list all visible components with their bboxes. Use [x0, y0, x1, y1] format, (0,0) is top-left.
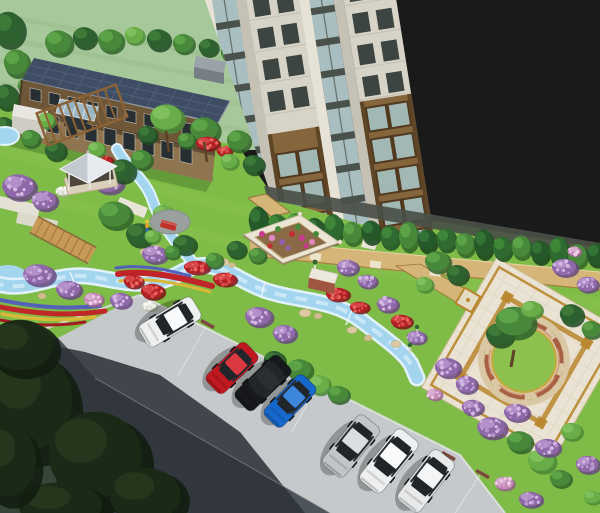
planter-bloom: [299, 235, 305, 241]
red-bloom: [335, 288, 337, 290]
tower-brick-window: [399, 166, 420, 191]
purple-bloom: [279, 335, 282, 338]
planter-bloom: [279, 239, 285, 245]
purple-bloom: [260, 311, 262, 313]
upper-pond: [0, 127, 19, 145]
treeDark-highlight: [74, 29, 86, 39]
tower-brick-window: [277, 153, 298, 178]
purple-bloom: [548, 441, 551, 444]
purple-bloom: [460, 383, 464, 387]
tower-window: [386, 71, 405, 93]
purple-bloom: [590, 277, 594, 281]
purple-bloom: [274, 331, 277, 334]
hedge-highlight: [438, 230, 448, 241]
pink-bloom: [89, 301, 93, 305]
purple-bloom: [529, 501, 532, 504]
purple-bloom: [382, 307, 385, 310]
purple-bloom: [154, 245, 158, 249]
tower-brick-window: [367, 106, 388, 131]
tower-window: [291, 86, 310, 108]
purple-bloom: [581, 466, 583, 468]
tower-window: [376, 8, 395, 30]
purple-bloom: [409, 338, 413, 342]
purple-bloom: [70, 293, 73, 296]
purple-bloom: [392, 301, 394, 303]
red-bloom: [151, 287, 153, 289]
purple-bloom: [358, 276, 362, 280]
treeLight-highlight: [417, 278, 426, 285]
bridge-lamp: [313, 260, 318, 265]
purple-bloom: [578, 283, 581, 286]
hedgeDark-highlight: [588, 245, 598, 256]
red-bloom: [225, 283, 227, 285]
treeMid-highlight: [174, 35, 185, 44]
treeDark-highlight: [174, 236, 186, 245]
purple-bloom: [469, 401, 472, 404]
purple-bloom: [555, 444, 558, 447]
purple-bloom: [522, 409, 526, 413]
purple-bloom: [464, 407, 466, 409]
purple-bloom: [119, 303, 122, 306]
red-bloom: [339, 291, 341, 293]
purple-bloom: [526, 492, 528, 494]
purple-bloom: [474, 404, 478, 408]
purple-bloom: [57, 285, 61, 289]
white-bloom: [144, 303, 147, 306]
pillar-cap: [298, 212, 302, 216]
purple-bloom: [33, 266, 35, 268]
purple-bloom: [22, 188, 25, 191]
planter-bloom: [267, 243, 272, 248]
treeDark-highlight: [561, 306, 573, 316]
treeMid-highlight: [498, 309, 519, 324]
purple-bloom: [20, 177, 23, 180]
purple-bloom: [369, 279, 371, 281]
purple-bloom: [23, 274, 27, 278]
purple-bloom: [510, 411, 512, 413]
red-bloom: [220, 280, 222, 282]
treeMid-highlight: [207, 254, 216, 261]
purple-bloom: [590, 462, 594, 466]
pink-bloom: [569, 251, 571, 253]
planter-bloom: [269, 235, 275, 241]
purple-bloom: [532, 495, 534, 497]
purple-bloom: [468, 404, 470, 406]
pillar-cap: [338, 240, 342, 244]
red-bloom: [203, 262, 206, 265]
pink-bloom: [571, 248, 574, 251]
treeMid-highlight: [250, 249, 259, 256]
purple-bloom: [116, 293, 118, 295]
purple-bloom: [26, 278, 28, 280]
purple-bloom: [115, 303, 119, 307]
boulder: [314, 313, 322, 319]
planter-bloom: [289, 231, 295, 237]
purple-bloom: [46, 197, 50, 201]
red-bloom: [145, 286, 147, 288]
purple-bloom: [444, 358, 446, 360]
hedgeDark-highlight: [475, 231, 485, 245]
red-bloom: [335, 296, 338, 299]
pink-bloom: [573, 252, 577, 256]
treeLight-highlight: [585, 492, 594, 498]
red-bloom: [221, 283, 225, 287]
pink-bloom: [85, 301, 87, 303]
pink-bloom: [430, 388, 434, 392]
treeMid-highlight: [551, 471, 562, 479]
hedgeDark-highlight: [419, 231, 429, 242]
purple-bloom: [524, 502, 528, 506]
purple-bloom: [476, 407, 480, 411]
purple-bloom: [30, 271, 32, 273]
treeDark-highlight: [128, 225, 143, 236]
red-bloom: [397, 321, 399, 323]
pink-bloom: [431, 396, 434, 399]
red-bloom: [139, 278, 143, 282]
red-bloom: [330, 296, 334, 300]
hedge-highlight: [381, 227, 391, 238]
purple-bloom: [44, 191, 48, 195]
purple-bloom: [370, 282, 372, 284]
treeLight-highlight: [562, 424, 573, 432]
purple-bloom: [343, 262, 346, 265]
bollard-lamp: [415, 325, 419, 329]
hedgeDark-highlight: [532, 242, 542, 253]
red-bloom: [229, 274, 232, 277]
treeMid-highlight: [47, 32, 62, 44]
pink-bloom: [92, 295, 95, 298]
red-bloom: [353, 310, 356, 313]
tower-window: [362, 75, 381, 97]
treeMid-highlight: [344, 223, 354, 234]
red-bloom: [105, 156, 107, 158]
purple-bloom: [488, 434, 491, 437]
person-legs: [146, 228, 148, 232]
boulder: [391, 341, 401, 348]
red-bloom: [361, 307, 363, 309]
purple-bloom: [122, 296, 124, 298]
purple-bloom: [251, 315, 255, 319]
red-bloom: [199, 140, 203, 144]
red-bloom: [125, 277, 128, 280]
purple-bloom: [535, 496, 538, 499]
purple-bloom: [414, 338, 418, 342]
treeDark-highlight: [148, 31, 160, 41]
purple-bloom: [150, 248, 153, 251]
purple-bloom: [471, 389, 473, 391]
purple-bloom: [345, 259, 349, 263]
planter-bloom: [285, 245, 290, 250]
red-bloom: [353, 306, 356, 309]
treeMid-highlight: [179, 134, 188, 141]
treeLight-highlight: [146, 231, 154, 237]
treeMid-highlight: [457, 235, 467, 246]
red-bloom: [144, 288, 148, 292]
purple-bloom: [42, 202, 45, 205]
pink-bloom: [500, 479, 503, 482]
purple-bloom: [157, 250, 161, 254]
purple-bloom: [590, 467, 594, 471]
treeMid-highlight: [132, 151, 143, 160]
purple-bloom: [367, 284, 370, 287]
pink-bloom: [508, 477, 512, 481]
purple-bloom: [485, 428, 489, 432]
planter-bloom: [303, 243, 308, 248]
red-bloom: [227, 280, 231, 284]
purple-bloom: [464, 375, 468, 379]
purple-bloom: [498, 421, 500, 423]
treeDark-highlight: [200, 40, 210, 48]
treeMid-highlight: [192, 119, 208, 131]
purple-bloom: [72, 290, 74, 292]
purple-bloom: [465, 387, 468, 390]
purple-bloom: [342, 265, 345, 268]
purple-bloom: [125, 296, 128, 299]
tower-brick-window: [372, 138, 393, 163]
paver: [370, 260, 382, 268]
purple-bloom: [459, 387, 462, 390]
purple-bloom: [77, 285, 79, 287]
red-bloom: [206, 139, 208, 141]
purple-bloom: [480, 421, 482, 423]
purple-bloom: [556, 268, 559, 271]
purple-bloom: [553, 263, 556, 266]
purple-bloom: [591, 456, 595, 460]
purple-bloom: [416, 331, 418, 333]
purple-bloom: [47, 276, 50, 279]
purple-bloom: [59, 288, 62, 291]
red-bloom: [401, 317, 404, 320]
treeLight-highlight: [152, 106, 170, 119]
pink-bloom: [436, 391, 438, 393]
treeDark-highlight: [228, 242, 238, 250]
red-bloom: [194, 261, 197, 264]
purple-bloom: [577, 463, 580, 466]
purple-bloom: [16, 180, 18, 182]
purple-bloom: [38, 194, 42, 198]
boulder: [299, 309, 311, 317]
purple-bloom: [582, 280, 585, 283]
tower-brick-window: [299, 149, 320, 174]
purple-bloom: [491, 433, 495, 437]
purple-bloom: [412, 333, 414, 335]
treeMid-highlight: [100, 31, 114, 42]
purple-bloom: [40, 270, 42, 272]
purple-bloom: [566, 264, 570, 268]
boulder: [38, 293, 46, 299]
purple-bloom: [517, 412, 521, 416]
boulder: [229, 263, 236, 268]
purple-bloom: [586, 285, 588, 287]
purple-bloom: [29, 182, 32, 185]
purple-bloom: [32, 278, 36, 282]
purple-bloom: [453, 364, 456, 367]
treeMid-highlight: [228, 132, 240, 142]
purple-bloom: [114, 299, 118, 303]
tower-window: [357, 43, 376, 65]
planter-shrub: [313, 231, 319, 237]
purple-bloom: [13, 187, 17, 191]
planter-bloom: [259, 231, 265, 237]
purple-bloom: [47, 206, 49, 208]
red-bloom: [400, 322, 404, 326]
purple-bloom: [383, 296, 387, 300]
tower-window: [257, 26, 276, 48]
pink-bloom: [503, 484, 505, 486]
purple-bloom: [260, 315, 263, 318]
planter-shrub: [295, 224, 301, 230]
purple-bloom: [253, 321, 257, 325]
white-bloom: [148, 301, 151, 304]
purple-bloom: [540, 447, 542, 449]
purple-bloom: [471, 411, 475, 415]
treeDark-highlight: [244, 156, 255, 165]
red-bloom: [222, 274, 225, 277]
purple-bloom: [288, 336, 290, 338]
treeMid-highlight: [22, 131, 32, 139]
treeLight-highlight: [522, 302, 533, 310]
hedge-highlight: [325, 216, 335, 230]
purple-bloom: [590, 282, 594, 286]
purple-bloom: [420, 336, 423, 339]
purple-bloom: [407, 336, 409, 338]
purple-bloom: [564, 259, 568, 263]
treeLight-highlight: [126, 28, 136, 36]
pink-bloom: [495, 482, 498, 485]
purple-bloom: [495, 419, 498, 422]
purple-bloom: [113, 295, 117, 299]
render-stage: [0, 0, 600, 513]
purple-bloom: [370, 276, 374, 280]
purple-bloom: [449, 367, 452, 370]
purple-bloom: [364, 276, 368, 280]
red-bloom: [221, 152, 223, 154]
hedge-highlight: [494, 238, 504, 249]
purple-bloom: [544, 443, 547, 446]
purple-bloom: [469, 409, 471, 411]
purple-bloom: [122, 300, 125, 303]
red-bloom: [209, 144, 212, 147]
purple-bloom: [148, 252, 151, 255]
red-bloom: [131, 277, 134, 280]
purple-bloom: [509, 416, 511, 418]
purple-bloom: [582, 286, 584, 288]
purple-bloom: [32, 195, 35, 198]
pink-bloom: [568, 248, 570, 250]
purple-bloom: [352, 266, 354, 268]
tower-window: [252, 0, 271, 17]
purple-bloom: [351, 271, 353, 273]
planter-bloom: [309, 239, 315, 245]
darkMass-highlight: [115, 472, 155, 500]
purple-bloom: [287, 332, 291, 336]
treeLight-highlight: [222, 155, 231, 162]
treeMid-highlight: [6, 51, 20, 64]
gazebo-finial: [86, 150, 89, 153]
red-bloom: [153, 292, 156, 295]
treeDark-highlight: [448, 266, 459, 275]
purple-bloom: [161, 254, 163, 256]
purple-bloom: [586, 457, 589, 460]
red-bloom: [406, 319, 409, 322]
pink-bloom: [427, 394, 430, 397]
purple-bloom: [586, 278, 589, 281]
purple-bloom: [359, 279, 362, 282]
purple-bloom: [440, 361, 444, 365]
white-bloom: [56, 191, 58, 193]
purple-bloom: [7, 184, 11, 188]
purple-bloom: [561, 269, 563, 271]
red-bloom: [365, 305, 367, 307]
purple-bloom: [71, 282, 75, 286]
purple-bloom: [266, 314, 268, 316]
purple-bloom: [586, 466, 588, 468]
purple-bloom: [281, 339, 283, 341]
purple-bloom: [381, 303, 384, 306]
treeLight-highlight: [89, 143, 98, 150]
purple-bloom: [252, 308, 254, 310]
red-bloom: [398, 324, 400, 326]
tower-brick-window: [394, 134, 415, 159]
purple-bloom: [490, 421, 492, 423]
purple-bloom: [495, 430, 498, 433]
pink-bloom: [504, 477, 507, 480]
purple-bloom: [50, 200, 52, 202]
person-torso: [145, 224, 148, 229]
purple-bloom: [567, 272, 569, 274]
purple-bloom: [64, 283, 68, 287]
purple-bloom: [550, 446, 554, 450]
red-bloom: [190, 269, 192, 271]
purple-bloom: [569, 267, 571, 269]
treeMid-highlight: [329, 387, 340, 395]
purple-bloom: [363, 282, 366, 285]
purple-bloom: [388, 306, 391, 309]
purple-bloom: [348, 263, 352, 267]
red-bloom: [193, 267, 197, 271]
red-bloom: [185, 266, 187, 268]
hedge-highlight: [550, 239, 560, 253]
purple-bloom: [151, 257, 153, 259]
pink-bloom: [498, 484, 500, 486]
tower-window: [281, 23, 300, 45]
clubhouse-window: [85, 123, 97, 143]
red-bloom: [160, 290, 163, 293]
red-bloom: [343, 296, 346, 299]
red-bloom: [155, 286, 158, 289]
red-bloom: [219, 276, 222, 279]
purple-bloom: [36, 202, 39, 205]
purple-bloom: [523, 494, 527, 498]
treeMid-highlight: [400, 224, 410, 238]
red-bloom: [135, 281, 139, 285]
purple-bloom: [480, 424, 484, 428]
red-bloom: [222, 147, 225, 150]
white-bloom: [59, 186, 62, 189]
purple-bloom: [20, 192, 24, 196]
purple-bloom: [8, 177, 12, 181]
purple-bloom: [459, 379, 463, 383]
pink-bloom: [574, 247, 577, 250]
purple-bloom: [508, 408, 511, 411]
red-bloom: [395, 318, 397, 320]
treeMid-highlight: [583, 322, 593, 330]
red-bloom: [356, 303, 360, 307]
purple-bloom: [450, 362, 452, 364]
purple-bloom: [289, 327, 293, 331]
purple-bloom: [345, 269, 347, 271]
purple-bloom: [516, 406, 520, 410]
